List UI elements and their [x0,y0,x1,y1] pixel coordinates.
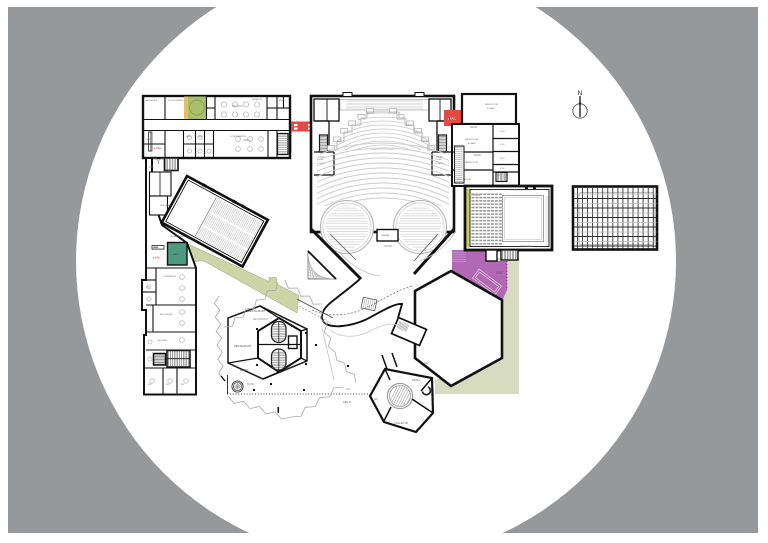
svg-text:KIOSK: KIOSK [240,368,248,372]
svg-text:ACCUEIL: ACCUEIL [158,339,168,342]
svg-text:4 BU: 4 BU [500,168,505,170]
svg-text:BU: BU [497,175,501,177]
svg-text:BILLETERIE: BILLETERIE [160,314,173,316]
svg-text:ACC: ACC [346,388,351,391]
svg-text:TOUR: TOUR [436,157,443,159]
svg-text:BUR: BUR [186,136,191,138]
svg-text:HALL: HALL [173,253,179,256]
svg-text:LOGES: LOGES [163,171,171,173]
svg-text:ABJ: ABJ [424,362,428,365]
svg-text:REPETITION: REPETITION [465,162,479,164]
svg-text:ABJ 37: ABJ 37 [343,400,352,404]
svg-text:COLLECTIF: COLLECTIF [394,421,409,425]
svg-text:◄ HALL: ◄ HALL [153,147,163,150]
svg-text:43 PLACES: 43 PLACES [468,194,481,197]
svg-text:WC: WC [166,384,170,386]
svg-text:SCENE: SCENE [382,235,390,237]
svg-text:ADMIN: ADMIN [243,139,251,142]
svg-text:4 BU: 4 BU [500,144,505,146]
svg-text:90 PLACES: 90 PLACES [520,245,533,248]
svg-text:REUNION: REUNION [252,99,263,101]
svg-text:BUR: BUR [279,100,284,102]
svg-text:REPET: REPET [470,127,478,129]
svg-text:SAS: SAS [149,166,154,169]
svg-text:ARCHIVES: ARCHIVES [146,99,158,102]
svg-text:SAS: SAS [146,138,151,141]
svg-text:◄ HALL: ◄ HALL [152,257,162,260]
svg-text:LOC: LOC [146,287,151,289]
svg-text:WC: WC [148,384,152,386]
svg-text:REPETITION: REPETITION [465,139,479,141]
svg-text:8 PIANO: 8 PIANO [487,107,495,110]
svg-text:KIOSK: KIOSK [247,384,254,386]
svg-text:FOYER PERSO: FOYER PERSO [168,100,184,102]
svg-text:WC: WC [181,384,185,386]
svg-text:RESTAURANT: RESTAURANT [234,344,252,348]
svg-text:COMMERCE: COMMERCE [163,276,177,278]
svg-text:RESTAURANT: RESTAURANT [253,318,269,321]
svg-text:VIDE: VIDE [496,271,503,275]
svg-text:4 BU: 4 BU [500,158,505,160]
svg-text:ABJ: ABJ [374,398,378,401]
svg-text:ABJ33: ABJ33 [412,378,420,382]
svg-text:PERC DE SON: PERC DE SON [457,179,471,181]
svg-text:N: N [578,90,583,97]
svg-text:6 PIANO: 6 PIANO [468,142,476,145]
svg-text:◄ HALL: ◄ HALL [447,118,457,121]
svg-text:REPETITION: REPETITION [485,104,499,106]
svg-text:4 BU: 4 BU [500,131,505,133]
svg-text:BUR: BUR [198,136,203,138]
svg-text:COMPTABILITE: COMPTABILITE [230,135,246,138]
svg-text:REPET: REPET [474,155,482,157]
svg-text:REUNION: REUNION [232,106,243,108]
svg-text:SCENE: SCENE [384,246,392,248]
svg-text:TOUR: TOUR [318,157,325,159]
svg-text:RESTAURANT: RESTAURANT [248,309,266,313]
